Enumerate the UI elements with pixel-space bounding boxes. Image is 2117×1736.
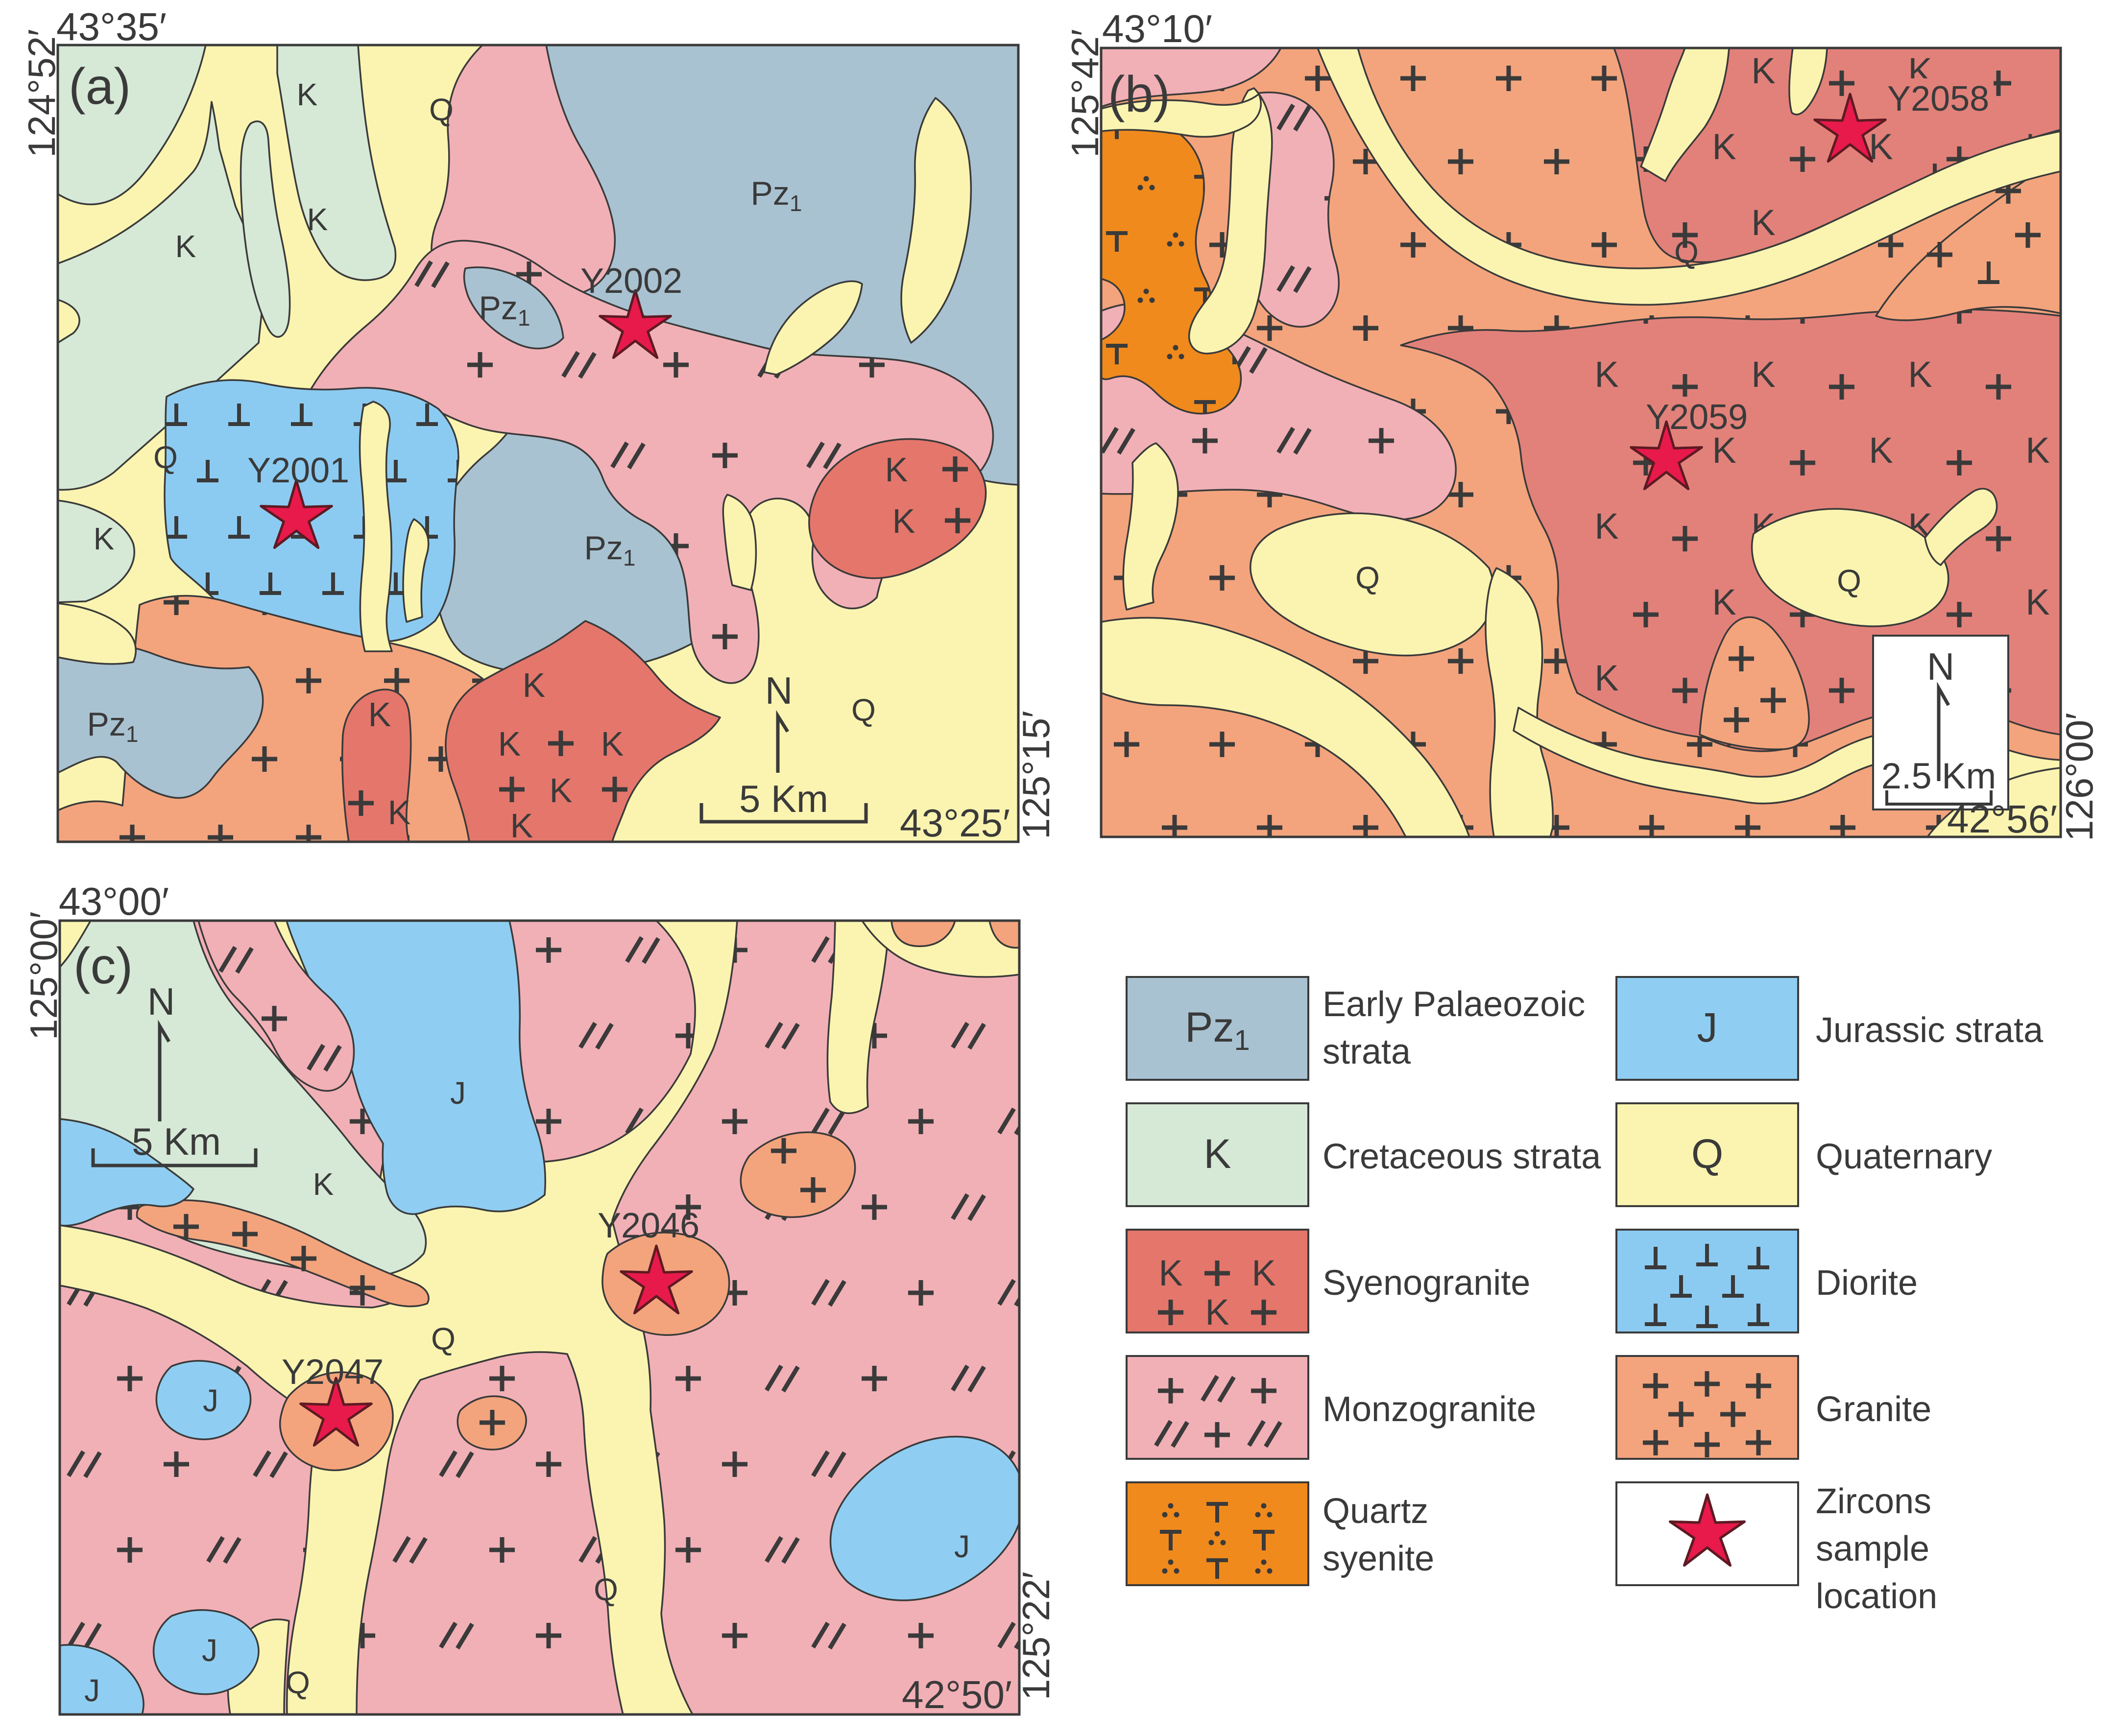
svg-text:2.5 Km: 2.5 Km [1881,756,1996,796]
svg-text:Q: Q [431,1321,456,1356]
svg-text:K: K [510,807,533,845]
svg-text:K: K [498,725,521,763]
svg-text:Q: Q [1837,563,1861,598]
svg-text:K: K [1203,1131,1231,1177]
svg-text:125°42′: 125°42′ [1063,29,1107,158]
svg-text:N: N [765,669,793,712]
svg-text:location: location [1816,1577,1937,1616]
svg-text:43°00′: 43°00′ [59,880,169,923]
svg-text:42°56′: 42°56′ [1947,797,2057,841]
svg-text:J: J [954,1529,970,1564]
svg-text:125°15′: 125°15′ [1014,711,1058,839]
svg-text:K: K [1158,1253,1182,1293]
svg-text:Y2058: Y2058 [1887,79,1989,119]
svg-text:K: K [297,77,318,112]
svg-text:strata: strata [1323,1032,1411,1071]
svg-text:J: J [450,1075,466,1111]
svg-text:K: K [550,771,573,809]
svg-text:N: N [147,980,175,1023]
svg-text:Q: Q [1355,560,1380,595]
svg-text:Cretaceous strata: Cretaceous strata [1323,1137,1601,1176]
svg-text:42°50′: 42°50′ [902,1673,1012,1716]
svg-text:J: J [84,1673,100,1708]
svg-text:(c): (c) [73,938,133,995]
svg-text:K: K [94,521,115,556]
svg-text:Y2047: Y2047 [282,1353,384,1392]
svg-text:J: J [1697,1004,1718,1050]
svg-text:K: K [892,502,915,540]
svg-text:K: K [601,725,624,763]
svg-text:Q: Q [594,1572,618,1607]
svg-text:K: K [1205,1292,1229,1332]
svg-text:K: K [1251,1253,1275,1293]
svg-text:Y2001: Y2001 [247,451,349,490]
svg-text:Q: Q [1674,235,1699,270]
svg-text:J: J [202,1633,217,1668]
svg-text:Diorite: Diorite [1816,1263,1918,1303]
svg-text:K: K [313,1166,334,1202]
svg-text:Quartz: Quartz [1323,1492,1428,1531]
svg-text:K: K [175,229,196,264]
svg-text:126°00′: 126°00′ [2058,713,2101,841]
svg-text:Y2002: Y2002 [580,262,682,301]
svg-text:Q: Q [1691,1131,1723,1177]
svg-text:43°35′: 43°35′ [56,5,167,48]
svg-text:Granite: Granite [1816,1390,1931,1429]
svg-text:K: K [307,202,328,237]
svg-text:Y2059: Y2059 [1646,398,1748,437]
svg-text:Monzogranite: Monzogranite [1323,1390,1536,1429]
svg-text:5 Km: 5 Km [132,1120,221,1163]
svg-text:125°00′: 125°00′ [22,911,65,1040]
svg-text:Q: Q [429,92,454,127]
svg-text:5 Km: 5 Km [739,777,828,820]
svg-text:124°52′: 124°52′ [20,29,63,158]
svg-text:Jurassic strata: Jurassic strata [1816,1011,2044,1050]
svg-text:43°25′: 43°25′ [900,801,1010,845]
svg-text:syenite: syenite [1323,1539,1434,1578]
svg-text:Q: Q [851,692,876,728]
svg-text:Syenogranite: Syenogranite [1323,1263,1530,1303]
svg-text:Q: Q [286,1665,310,1700]
svg-text:K: K [885,451,908,489]
svg-text:N: N [1927,645,1954,688]
svg-text:(b): (b) [1108,66,1170,123]
svg-text:sample: sample [1816,1529,1929,1569]
svg-text:43°10′: 43°10′ [1102,7,1212,50]
svg-text:K: K [523,666,546,704]
svg-text:Y2046: Y2046 [598,1206,699,1245]
svg-text:(a): (a) [69,58,131,115]
svg-text:Zircons: Zircons [1816,1482,1931,1521]
svg-text:J: J [203,1383,218,1418]
svg-text:Q: Q [153,440,178,475]
svg-text:125°22′: 125°22′ [1014,1571,1058,1700]
svg-text:Quaternary: Quaternary [1816,1137,1992,1176]
svg-text:Early Palaeozoic: Early Palaeozoic [1323,985,1585,1024]
svg-text:K: K [388,793,411,832]
svg-text:K: K [368,695,391,734]
